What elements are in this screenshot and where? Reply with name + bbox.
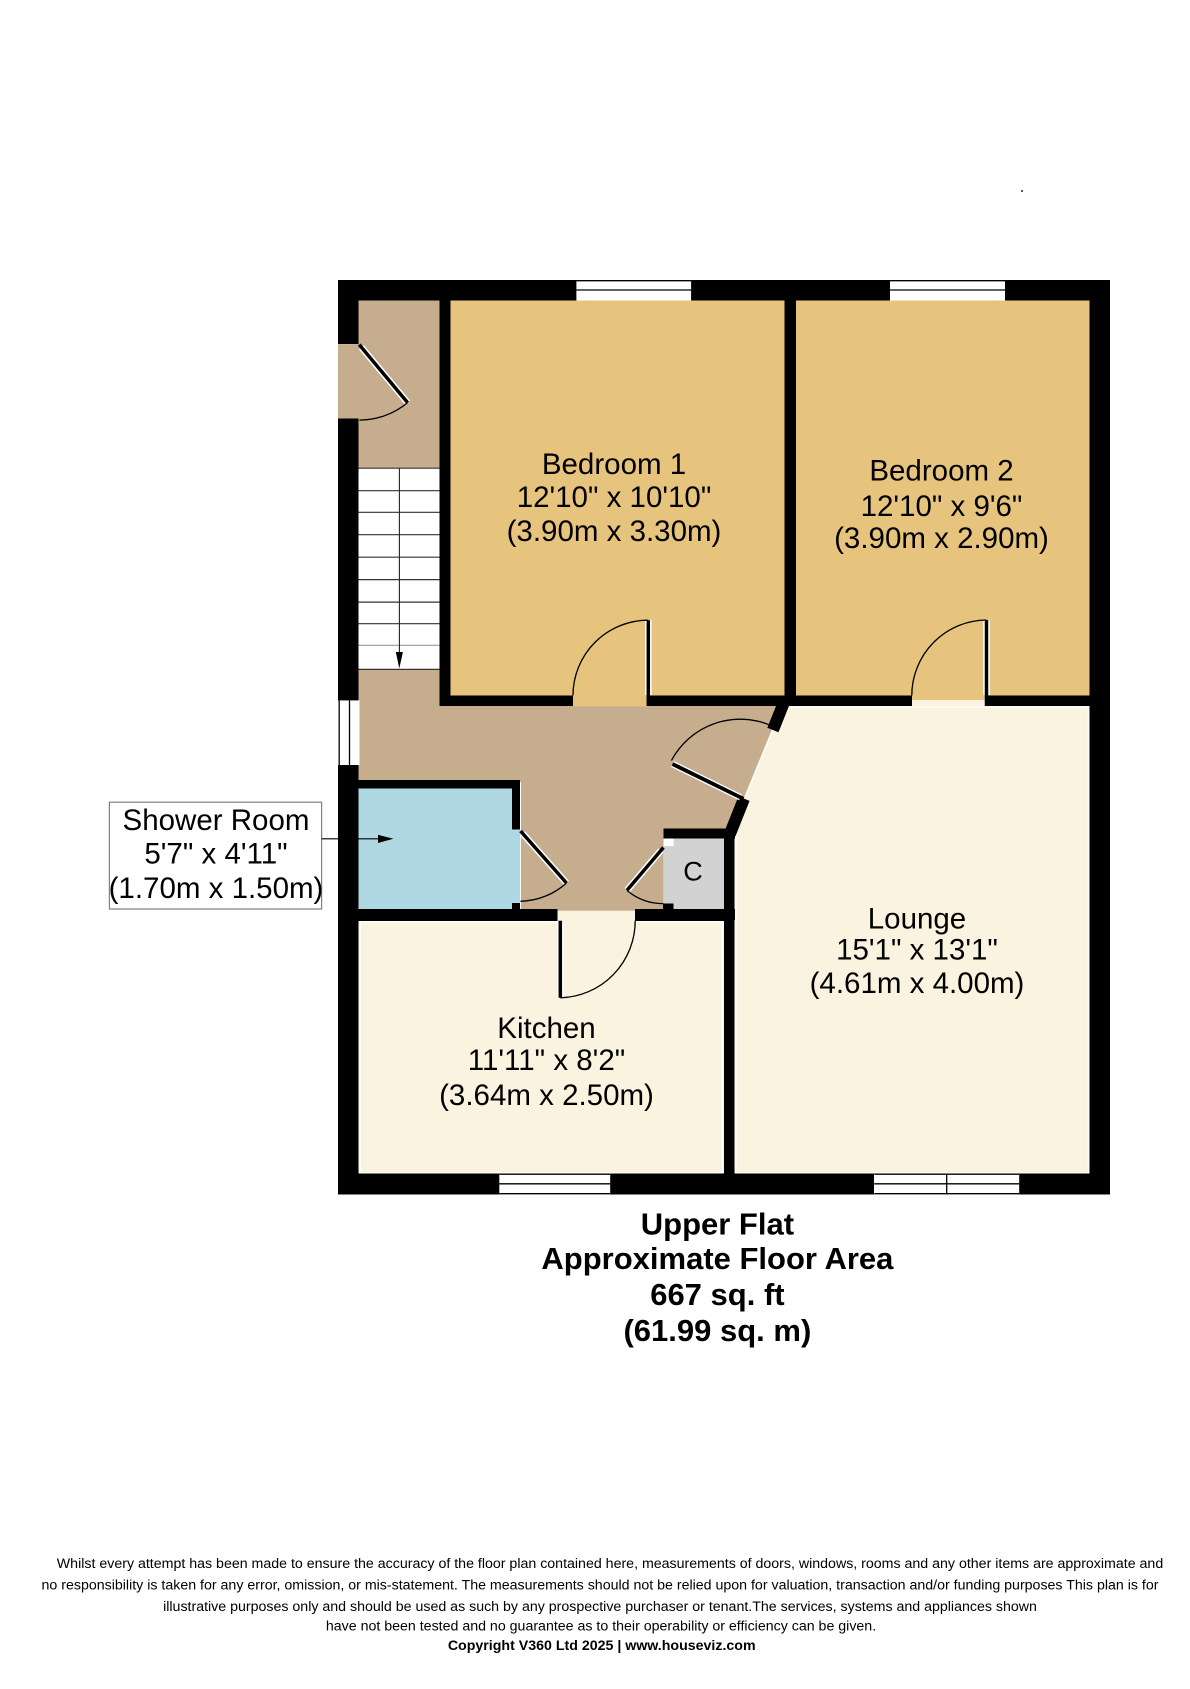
svg-text:15'1" x 13'1": 15'1" x 13'1" xyxy=(836,934,998,967)
svg-text:11'11" x 8'2": 11'11" x 8'2" xyxy=(468,1044,625,1077)
svg-text:illustrative purposes only and: illustrative purposes only and should be… xyxy=(163,1599,1037,1615)
svg-text:(4.61m x 4.00m): (4.61m x 4.00m) xyxy=(810,967,1025,1000)
svg-text:(61.99 sq. m): (61.99 sq. m) xyxy=(623,1313,811,1348)
svg-text:667 sq. ft: 667 sq. ft xyxy=(650,1277,784,1312)
svg-text:Lounge: Lounge xyxy=(868,903,966,936)
svg-text:Whilst every attempt has been: Whilst every attempt has been made to en… xyxy=(57,1556,1163,1572)
svg-text:C: C xyxy=(683,857,703,887)
svg-text:Bedroom 2: Bedroom 2 xyxy=(869,455,1013,488)
svg-text:Kitchen: Kitchen xyxy=(497,1012,595,1045)
svg-text:12'10" x 9'6": 12'10" x 9'6" xyxy=(861,490,1023,523)
svg-text:Approximate Floor Area: Approximate Floor Area xyxy=(541,1241,894,1276)
svg-text:(1.70m x 1.50m): (1.70m x 1.50m) xyxy=(109,872,324,905)
svg-text:Copyright V360 Ltd 2025 | www.: Copyright V360 Ltd 2025 | www.houseviz.c… xyxy=(448,1638,756,1654)
svg-text:no responsibility is taken for: no responsibility is taken for any error… xyxy=(42,1578,1159,1594)
svg-text:(3.90m x 3.30m): (3.90m x 3.30m) xyxy=(507,515,722,548)
svg-text:have not been tested and no gu: have not been tested and no guarantee as… xyxy=(326,1619,876,1635)
svg-text:(3.90m x 2.90m): (3.90m x 2.90m) xyxy=(834,522,1049,555)
svg-text:5'7" x 4'11": 5'7" x 4'11" xyxy=(144,838,287,871)
svg-text:Bedroom 1: Bedroom 1 xyxy=(542,448,686,481)
svg-text:12'10" x 10'10": 12'10" x 10'10" xyxy=(517,481,712,514)
svg-text:Shower Room: Shower Room xyxy=(123,804,310,837)
svg-text:Upper Flat: Upper Flat xyxy=(641,1207,794,1242)
svg-text:(3.64m x 2.50m): (3.64m x 2.50m) xyxy=(439,1079,654,1112)
